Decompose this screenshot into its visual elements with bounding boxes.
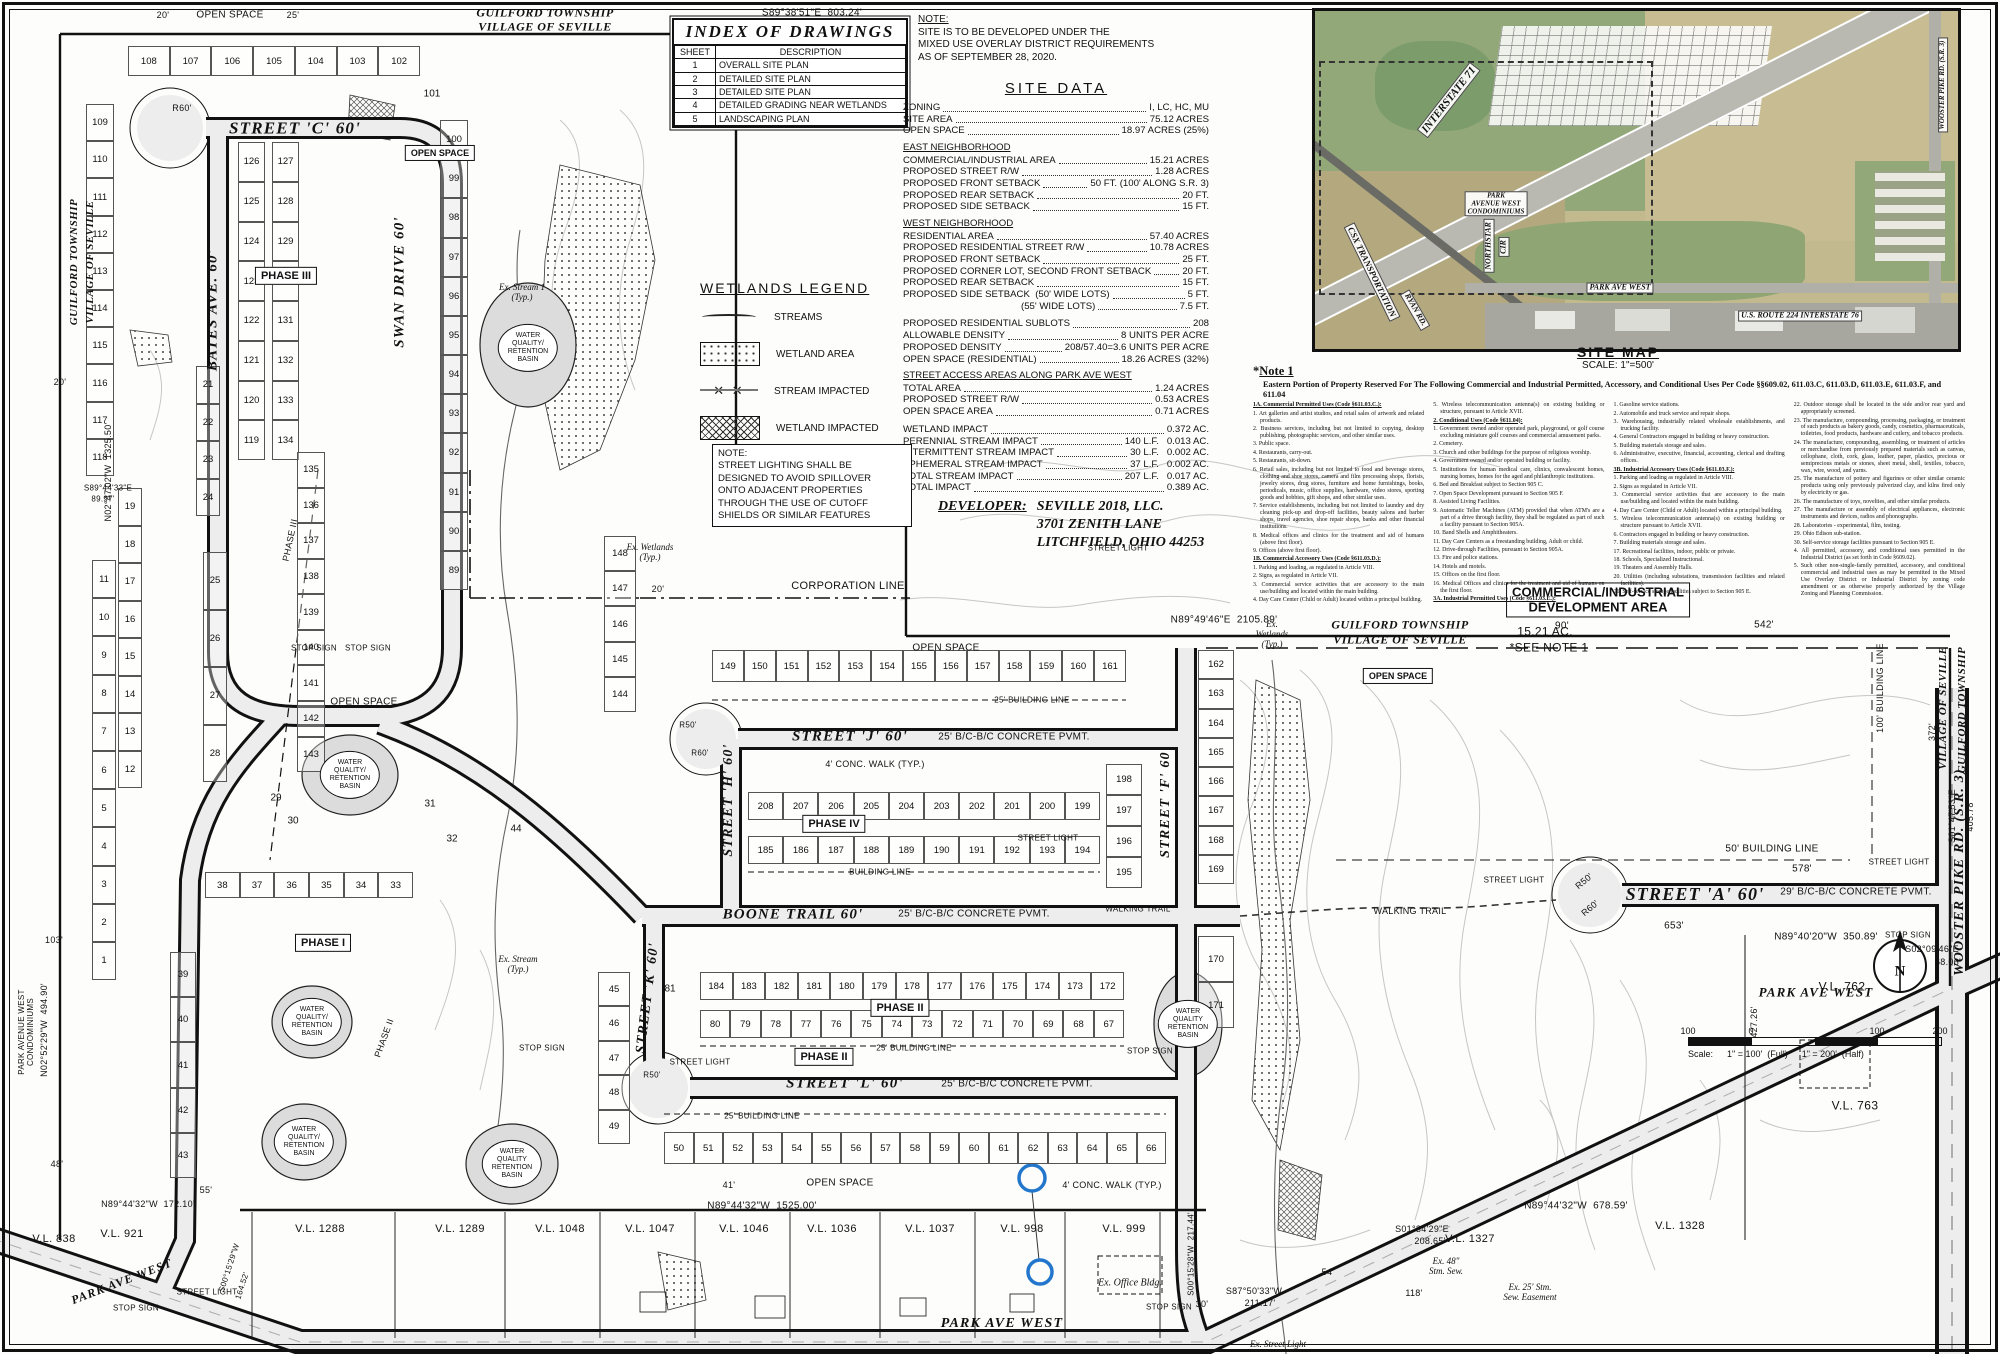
site-data-row: PROPOSED RESIDENTIAL SUBLOTS208 xyxy=(903,318,1209,330)
site-data-row: ALLOWABLE DENSITY8 UNITS PER ACRE xyxy=(903,330,1209,342)
site-data-row: PROPOSED FRONT SETBACK25 FT. xyxy=(903,254,1209,266)
note-1-item: 7. Service establishments, including but… xyxy=(1253,503,1424,531)
site-data-row: EPHEMERAL STREAM IMPACT37 L.F. 0.002 AC. xyxy=(903,459,1209,471)
note-1-item: 9. Offices (above first floor). xyxy=(1253,548,1424,555)
dotted-leader xyxy=(943,111,1146,112)
index-row: 3DETAILED SITE PLAN xyxy=(675,86,906,99)
site-data-label: PROPOSED CORNER LOT, SECOND FRONT SETBAC… xyxy=(903,266,1151,278)
site-data-value: 18.26 ACRES (32%) xyxy=(1122,354,1209,366)
site-data-value: 7.5 FT. xyxy=(1180,301,1209,313)
site-data-row: PROPOSED RESIDENTIAL STREET R/W10.78 ACR… xyxy=(903,242,1209,254)
site-data-label: PROPOSED STREET R/W xyxy=(903,166,1019,178)
site-data-row: OPEN SPACE AREA0.71 ACRES xyxy=(903,406,1209,418)
site-data-label: INTERMITTENT STREAM IMPACT xyxy=(903,447,1054,459)
note-1-item: 27. The manufacture or assembly of elect… xyxy=(1794,507,1965,521)
note-1-item: 6. Contractors engaged in building or he… xyxy=(1614,532,1785,539)
note-1-item: 4. All permitted, accessory, and conditi… xyxy=(1794,548,1965,562)
note-1-item: 4. Restaurants, carry-out. xyxy=(1253,450,1424,457)
note-1-title: Note 1 xyxy=(1259,364,1293,378)
scale-full: 1" = 100' (Full) xyxy=(1727,1049,1788,1059)
site-data-label: PROPOSED REAR SETBACK xyxy=(903,277,1034,289)
site-data-label: PROPOSED SIDE SETBACK xyxy=(903,201,1030,213)
overlay-district-note: NOTE: SITE IS TO BE DEVELOPED UNDER THE … xyxy=(918,14,1154,64)
site-data-row: INTERMITTENT STREAM IMPACT30 L.F. 0.002 … xyxy=(903,447,1209,459)
site-data-value: 50 FT. (100' ALONG S.R. 3) xyxy=(1090,178,1209,190)
sheet-number: 1 xyxy=(675,59,716,72)
site-data-label: PERENNIAL STREAM IMPACT xyxy=(903,436,1038,448)
site-data-title: SITE DATA xyxy=(903,80,1209,97)
note-label: NOTE: xyxy=(918,14,1154,27)
note-line: STREET LIGHTING SHALL BE xyxy=(718,460,906,472)
site-data-value: I, LC, HC, MU xyxy=(1149,102,1209,114)
note-1-item: 1. Government owned and/or operated park… xyxy=(1433,426,1604,440)
dotted-leader xyxy=(991,433,1164,434)
sheet-number: 3 xyxy=(675,86,716,99)
note-1-item: 1B. Commercial Accessory Uses (Code §611… xyxy=(1253,556,1424,563)
note-1-item: 1A. Commercial Permitted Uses (Code §611… xyxy=(1253,402,1424,409)
dotted-leader xyxy=(964,391,1152,392)
legend-item: WETLAND AREA xyxy=(700,342,900,366)
note-1-heading: *Note 1 xyxy=(1253,364,1965,379)
site-data-label: (55' WIDE LOTS) xyxy=(1021,301,1095,313)
note-1-item: 22. Outdoor storage shall be located in … xyxy=(1794,402,1965,416)
site-data-label: RESIDENTIAL AREA xyxy=(903,231,994,243)
dotted-leader xyxy=(1046,468,1127,469)
note-1-item: 28. Laboratories - experimental, film, t… xyxy=(1794,523,1965,530)
sheet-description: LANDSCAPING PLAN xyxy=(716,112,906,125)
site-data-row: PROPOSED STREET R/W0.53 ACRES xyxy=(903,394,1209,406)
dotted-leader xyxy=(996,415,1152,416)
site-data-row: PROPOSED DENSITY208/57.40=3.6 UNITS PER … xyxy=(903,342,1209,354)
note-1-item: 3. Public space. xyxy=(1253,441,1424,448)
aerial-road-label: CIR xyxy=(1499,237,1510,257)
dotted-leader xyxy=(997,239,1147,240)
site-data-label: PROPOSED SIDE SETBACK (50' WIDE LOTS) xyxy=(903,289,1110,301)
sheet-description: DETAILED GRADING NEAR WETLANDS xyxy=(716,99,906,112)
site-data-label: PROPOSED STREET R/W xyxy=(903,394,1019,406)
dotted-leader xyxy=(1098,309,1176,310)
note-1-item: 6. Administrative, executive, financial,… xyxy=(1614,451,1785,465)
legend-title: WETLANDS LEGEND xyxy=(700,280,900,296)
note-1-item: 21. Self-service storage facilities subj… xyxy=(1614,589,1785,596)
note-1-item: 2. Automobile and truck service and repa… xyxy=(1614,411,1785,418)
legend-label: WETLAND IMPACTED xyxy=(776,423,879,434)
note-1-item: 11. Day Care Centers as a freestanding b… xyxy=(1433,539,1604,546)
scale-bar-ticks: 100 0 100 200 xyxy=(1688,1026,1988,1037)
site-data-row: PROPOSED SIDE SETBACK (50' WIDE LOTS)5 F… xyxy=(903,289,1209,301)
site-data-row: OPEN SPACE (RESIDENTIAL)18.26 ACRES (32%… xyxy=(903,354,1209,366)
note-1-item: 2. Signs as regulated in Article VII. xyxy=(1614,484,1785,491)
dotted-leader xyxy=(968,134,1119,135)
dotted-leader xyxy=(1040,362,1119,363)
aerial-road-label: RYAN RD. xyxy=(1400,289,1430,331)
note-1-item: 3. Church and other buildings for the pu… xyxy=(1433,450,1604,457)
index-col-sheet: SHEET xyxy=(675,46,716,59)
index-row: 4DETAILED GRADING NEAR WETLANDS xyxy=(675,99,906,112)
note-line: ONTO ADJACENT PROPERTIES xyxy=(718,485,906,497)
site-data-row: PROPOSED SIDE SETBACK15 FT. xyxy=(903,201,1209,213)
note-line: SITE IS TO BE DEVELOPED UNDER THE xyxy=(918,27,1154,40)
note-line: SHIELDS OR SIMILAR FEATURES xyxy=(718,510,906,522)
note-1-item: 2. Cemetery. xyxy=(1433,441,1604,448)
aerial-road-label: NORTHSTAR xyxy=(1484,219,1495,273)
site-data-value: 1.24 ACRES xyxy=(1155,383,1209,395)
dotted-leader xyxy=(1022,403,1152,404)
street-lighting-note: NOTE: STREET LIGHTING SHALL BE DESIGNED … xyxy=(712,444,912,527)
note-1-item: 4. Day Care Center (Child or Adult) loca… xyxy=(1253,597,1424,604)
legend-label: STREAM IMPACTED xyxy=(774,386,869,397)
site-data-label: SITE AREA xyxy=(903,114,953,126)
note-1-item: 8. Assisted Living Facilities. xyxy=(1433,499,1604,506)
site-data-value: 15 FT. xyxy=(1182,277,1209,289)
site-data-label: PROPOSED RESIDENTIAL STREET R/W xyxy=(903,242,1084,254)
aerial-road-label: INTERSTATE 71 xyxy=(1417,62,1481,139)
dotted-leader xyxy=(1043,263,1179,264)
site-data-label: COMMERCIAL/INDUSTRIAL AREA xyxy=(903,155,1056,167)
site-data-value: 0.372 AC. xyxy=(1167,424,1209,436)
site-data-label: PROPOSED FRONT SETBACK xyxy=(903,254,1040,266)
aerial-road-label: U.S. ROUTE 224 INTERSTATE 76 xyxy=(1738,311,1862,322)
dotted-leader xyxy=(1041,444,1122,445)
site-data-rows: ZONINGI, LC, HC, MUSITE AREA75.12 ACRESO… xyxy=(903,102,1209,494)
site-data-label: WETLAND IMPACT xyxy=(903,424,988,436)
site-data-value: 20 FT. xyxy=(1182,266,1209,278)
sheet-number: 2 xyxy=(675,72,716,85)
dotted-leader xyxy=(1087,251,1147,252)
site-data-row: OPEN SPACE18.97 ACRES (25%) xyxy=(903,125,1209,137)
note-1-item: 24. The manufacture, compounding, assemb… xyxy=(1794,440,1965,475)
note-1-item: 16. Medical Offices and clinics for the … xyxy=(1433,581,1604,595)
note-1-item: 13. Fire and police stations. xyxy=(1433,555,1604,562)
site-data-row: PERENNIAL STREAM IMPACT140 L.F. 0.013 AC… xyxy=(903,436,1209,448)
note-1-item: 1. Parking and loading as regulated in A… xyxy=(1614,475,1785,482)
site-data-value: 1.28 ACRES xyxy=(1155,166,1209,178)
site-data-label: PROPOSED REAR SETBACK xyxy=(903,190,1034,202)
note-1-item: 30. Self-service storage facilities purs… xyxy=(1794,540,1965,547)
note-1-item: 4. General Contractors engaged in buildi… xyxy=(1614,434,1785,441)
sheet-description: DETAILED SITE PLAN xyxy=(716,86,906,99)
sheet-description: DETAILED SITE PLAN xyxy=(716,72,906,85)
site-data-value: 208/57.40=3.6 UNITS PER ACRE xyxy=(1065,342,1209,354)
note-1-item: 8. Medical offices and clinics for the t… xyxy=(1253,533,1424,547)
note-1-item: 20. Utilities (including substations, tr… xyxy=(1614,574,1785,588)
dotted-leader xyxy=(1057,456,1127,457)
site-data-label: TOTAL STREAM IMPACT xyxy=(903,471,1014,483)
note-1-item: 1. Art galleries and artist studios, and… xyxy=(1253,411,1424,425)
wetlands-legend: WETLANDS LEGEND STREAMS WETLAND AREA STR… xyxy=(700,280,900,454)
scale-prefix: Scale: xyxy=(1688,1049,1713,1059)
site-data-row: RESIDENTIAL AREA57.40 ACRES xyxy=(903,231,1209,243)
sheet-description: OVERALL SITE PLAN xyxy=(716,59,906,72)
note-1-item: 7. Open Space Development pursuant to Se… xyxy=(1433,491,1604,498)
site-data-row: TOTAL STREAM IMPACT207 L.F. 0.017 AC. xyxy=(903,471,1209,483)
scale-tick: 100 xyxy=(1680,1026,1695,1036)
site-data-label: OPEN SPACE (RESIDENTIAL) xyxy=(903,354,1037,366)
index-title: INDEX OF DRAWINGS xyxy=(674,20,906,45)
note-1-item: 5. Such other non-single-family permitte… xyxy=(1794,563,1965,598)
site-data-value: 8 UNITS PER ACRE xyxy=(1121,330,1209,342)
scale-bar-graphic xyxy=(1688,1037,1942,1046)
note-line: MIXED USE OVERLAY DISTRICT REQUIREMENTS xyxy=(918,39,1154,52)
streams-swatch-icon xyxy=(700,306,758,328)
site-data-table: SITE DATA ZONINGI, LC, HC, MUSITE AREA75… xyxy=(903,80,1209,494)
site-data-value: 0.389 AC. xyxy=(1167,482,1209,494)
dotted-leader xyxy=(1073,327,1190,328)
note-1-item: 3. Commercial service activities that ar… xyxy=(1253,582,1424,596)
index-row: 5LANDSCAPING PLAN xyxy=(675,112,906,125)
dotted-leader xyxy=(1043,187,1087,188)
note-1-item: 3. Warehousing, industrially related who… xyxy=(1614,419,1785,433)
note-1-item: 4. Government owned and/or operated buil… xyxy=(1433,458,1604,465)
aerial-road-label: CSX TRANSPORTATION xyxy=(1344,222,1401,321)
note-1-item: 5. Wireless telecommunication antenna(s)… xyxy=(1614,516,1785,530)
note-1-item: 4. Day Care Center (Child or Adult) loca… xyxy=(1614,508,1785,515)
note-1-item: 7. Building materials storage and sales. xyxy=(1614,540,1785,547)
north-arrow-letter: N xyxy=(1895,964,1906,981)
legend-label: WETLAND AREA xyxy=(776,349,854,360)
dotted-leader xyxy=(1005,351,1062,352)
wetland-area-swatch-icon xyxy=(700,342,760,366)
stream-impacted-swatch-icon xyxy=(700,380,758,402)
legend-label: STREAMS xyxy=(774,312,822,323)
dotted-leader xyxy=(1022,175,1152,176)
note-1-columns: 1A. Commercial Permitted Uses (Code §611… xyxy=(1253,402,1965,604)
dotted-leader xyxy=(956,122,1147,123)
note-1-item: 5. Institutions for human medical care, … xyxy=(1433,467,1604,481)
site-data-value: 10.78 ACRES xyxy=(1150,242,1209,254)
site-data-value: 30 L.F. 0.002 AC. xyxy=(1130,447,1209,459)
site-data-value: 15 FT. xyxy=(1182,201,1209,213)
note-1-item: 17. Recreational facilities, indoor, pub… xyxy=(1614,549,1785,556)
site-data-value: 5 FT. xyxy=(1188,289,1209,301)
note-1-item: 10. Band Shells and Amphitheaters. xyxy=(1433,530,1604,537)
site-data-value: 0.53 ACRES xyxy=(1155,394,1209,406)
index-col-description: DESCRIPTION xyxy=(716,46,906,59)
note-1-item: 14. Hotels and motels. xyxy=(1433,564,1604,571)
site-data-value: 207 L.F. 0.017 AC. xyxy=(1125,471,1209,483)
note-1-item: 1. Gasoline service stations. xyxy=(1614,402,1785,409)
site-data-label: ALLOWABLE DENSITY xyxy=(903,330,1005,342)
site-data-row: (55' WIDE LOTS)7.5 FT. xyxy=(903,301,1209,313)
site-data-value: 18.97 ACRES (25%) xyxy=(1122,125,1209,137)
note-1-item: 23. The manufacture, compounding, proces… xyxy=(1794,418,1965,439)
note-1-item: 12. Drive-through Facilities, pursuant t… xyxy=(1433,547,1604,554)
dotted-leader xyxy=(1037,286,1179,287)
site-map-title: SITE MAP xyxy=(1538,344,1698,360)
site-data-value: 75.12 ACRES xyxy=(1150,114,1209,126)
site-data-label: PROPOSED FRONT SETBACK xyxy=(903,178,1040,190)
site-data-row: COMMERCIAL/INDUSTRIAL AREA15.21 ACRES xyxy=(903,155,1209,167)
site-data-row: ZONINGI, LC, HC, MU xyxy=(903,102,1209,114)
site-data-row: WETLAND IMPACT0.372 AC. xyxy=(903,424,1209,436)
sheet-number: 5 xyxy=(675,112,716,125)
site-data-row: PROPOSED REAR SETBACK15 FT. xyxy=(903,277,1209,289)
site-data-row: SITE AREA75.12 ACRES xyxy=(903,114,1209,126)
site-plan-sheet: SITE MAP SCALE: 1"=500' INDEX OF DRAWING… xyxy=(0,0,2000,1354)
note-1-item: 5. Restaurants, sit-down. xyxy=(1253,458,1424,465)
dotted-leader xyxy=(1017,479,1122,480)
site-data-row: TOTAL AREA1.24 ACRES xyxy=(903,383,1209,395)
note-1-item: 2. Conditional Uses (Code §611.04): xyxy=(1433,418,1604,425)
note-1-item: 1. Parking and loading, as regulated in … xyxy=(1253,565,1424,572)
site-data-row: PROPOSED CORNER LOT, SECOND FRONT SETBAC… xyxy=(903,266,1209,278)
developer-block: DEVELOPER: SEVILLE 2018, LLC. 3701 ZENIT… xyxy=(938,498,1204,553)
site-data-value: 208 xyxy=(1193,318,1209,330)
note-1-item: 19. Theaters and Assembly Halls. xyxy=(1614,565,1785,572)
aerial-road-label: PARK AVE WEST xyxy=(1586,283,1653,294)
note-1-item: 25. The manufacture of pottery and figur… xyxy=(1794,476,1965,497)
site-data-value: 25 FT. xyxy=(1182,254,1209,266)
site-data-label: OPEN SPACE AREA xyxy=(903,406,993,418)
note-1-item: 5. Wireless telecommunication antenna(s)… xyxy=(1433,402,1604,416)
legend-item: WETLAND IMPACTED xyxy=(700,416,900,440)
site-data-row: PROPOSED STREET R/W1.28 ACRES xyxy=(903,166,1209,178)
note-1-item: 29. Ohio Edison sub-station. xyxy=(1794,531,1965,538)
developer-label: DEVELOPER: xyxy=(938,498,1027,553)
site-data-label: PROPOSED RESIDENTIAL SUBLOTS xyxy=(903,318,1070,330)
note-1-item: 3. Commercial service activities that ar… xyxy=(1614,492,1785,506)
site-data-value: 37 L.F. 0.002 AC. xyxy=(1130,459,1209,471)
dotted-leader xyxy=(1059,163,1147,164)
note-line: DESIGNED TO AVOID SPILLOVER xyxy=(718,473,906,485)
note-1-intro: Eastern Portion of Property Reserved For… xyxy=(1263,380,1965,399)
note-1-item: 9. Automatic Teller Machines (ATM) provi… xyxy=(1433,508,1604,529)
note-line: AS OF SEPTEMBER 28, 2020. xyxy=(918,52,1154,65)
scale-tick: 200 xyxy=(1932,1026,1947,1036)
note-1-item: 2. Business services, including but not … xyxy=(1253,426,1424,440)
site-data-subheading: EAST NEIGHBORHOOD xyxy=(903,142,1209,154)
site-data-label: TOTAL IMPACT xyxy=(903,482,971,494)
scale-half: 1" = 200' (Half) xyxy=(1802,1049,1864,1059)
aerial-road-label: WOOSTER PIKE RD. (S.R. 3) xyxy=(1938,38,1948,133)
note-1-item: 6. Bed and Breakfast subject to Section … xyxy=(1433,482,1604,489)
scale-tick: 0 xyxy=(1748,1026,1753,1036)
aerial-road-label: PARK AVENUE WEST CONDOMINIUMS xyxy=(1465,191,1528,216)
note-1-block: *Note 1 Eastern Portion of Property Rese… xyxy=(1253,364,1965,604)
site-data-subheading: STREET ACCESS AREAS ALONG PARK AVE WEST xyxy=(903,370,1209,382)
sheet-number: 4 xyxy=(675,99,716,112)
note-1-item: 26. The manufacture of toys, novelties, … xyxy=(1794,499,1965,506)
dotted-leader xyxy=(1037,198,1179,199)
developer-name: SEVILLE 2018, LLC. xyxy=(1037,498,1205,516)
note-label: NOTE: xyxy=(718,448,906,460)
note-1-item: 3A. Industrial Permitted Uses (Code §611… xyxy=(1433,596,1604,603)
note-1-item: 18. Schools, Specialized Instructional. xyxy=(1614,557,1785,564)
site-data-value: 0.71 ACRES xyxy=(1155,406,1209,418)
wetland-impacted-swatch-icon xyxy=(700,416,760,440)
note-line: THROUGH THE USE OF CUTOFF xyxy=(718,498,906,510)
site-data-value: 57.40 ACRES xyxy=(1150,231,1209,243)
site-data-label: EPHEMERAL STREAM IMPACT xyxy=(903,459,1043,471)
site-data-label: ZONING xyxy=(903,102,940,114)
legend-item: STREAMS xyxy=(700,306,900,328)
index-row: 1OVERALL SITE PLAN xyxy=(675,59,906,72)
site-data-value: 20 FT. xyxy=(1182,190,1209,202)
dotted-leader xyxy=(1154,274,1179,275)
site-data-label: OPEN SPACE xyxy=(903,125,965,137)
site-data-subheading: WEST NEIGHBORHOOD xyxy=(903,218,1209,230)
dotted-leader xyxy=(1008,339,1118,340)
site-data-row: PROPOSED REAR SETBACK20 FT. xyxy=(903,190,1209,202)
dotted-leader xyxy=(974,491,1164,492)
index-row: 2DETAILED SITE PLAN xyxy=(675,72,906,85)
note-1-item: 2. Signs, as regulated in Article VII. xyxy=(1253,573,1424,580)
dotted-leader xyxy=(1033,210,1179,211)
site-data-row: TOTAL IMPACT0.389 AC. xyxy=(903,482,1209,494)
site-data-value: 15.21 ACRES xyxy=(1150,155,1209,167)
index-of-drawings: INDEX OF DRAWINGS SHEET DESCRIPTION 1OVE… xyxy=(672,18,908,128)
note-1-item: 5. Building materials storage and sales. xyxy=(1614,443,1785,450)
developer-address: LITCHFIELD, OHIO 44253 xyxy=(1037,534,1205,552)
developer-address: 3701 ZENITH LANE xyxy=(1037,516,1205,534)
site-data-value: 140 L.F. 0.013 AC. xyxy=(1125,436,1209,448)
dotted-leader xyxy=(1113,298,1185,299)
site-data-row: PROPOSED FRONT SETBACK50 FT. (100' ALONG… xyxy=(903,178,1209,190)
scale-tick: 100 xyxy=(1869,1026,1884,1036)
note-1-item: 3B. Industrial Accessory Uses (Code §611… xyxy=(1614,467,1785,474)
scale-bar: 100 0 100 200 Scale: 1" = 100' (Full) 1"… xyxy=(1688,1026,1988,1059)
note-1-item: 15. Offices on the first floor. xyxy=(1433,572,1604,579)
note-1-item: 6. Retail sales, including but not limit… xyxy=(1253,467,1424,502)
site-data-label: PROPOSED DENSITY xyxy=(903,342,1002,354)
legend-item: STREAM IMPACTED xyxy=(700,380,900,402)
site-data-label: TOTAL AREA xyxy=(903,383,961,395)
